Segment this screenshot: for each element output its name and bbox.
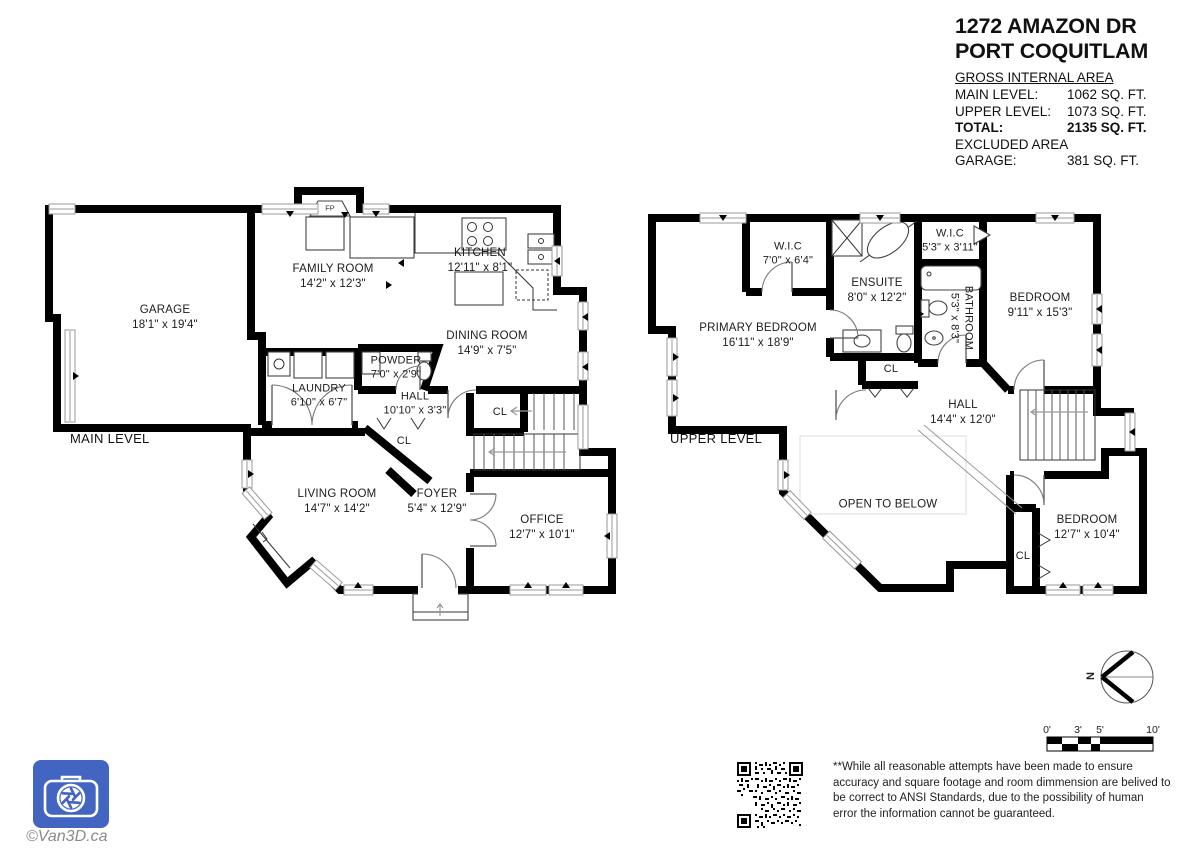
room-label-dining-room: DINING ROOM 14'9" x 7'5" bbox=[446, 329, 527, 359]
room-label-kitchen: KITCHEN 12'11" x 8'1" bbox=[448, 246, 513, 276]
room-label-primary-bedroom: PRIMARY BEDROOM 16'11" x 18'9" bbox=[699, 321, 817, 351]
scale-bar bbox=[1047, 737, 1153, 751]
title-block: 1272 AMAZON DR PORT COQUITLAM GROSS INTE… bbox=[955, 14, 1175, 170]
stat-row-total: TOTAL:2135 SQ. FT. bbox=[955, 120, 1175, 137]
room-label-garage: GARAGE 18'1" x 19'4" bbox=[132, 303, 198, 333]
room-label-hall: HALL 10'10" x 3'3" bbox=[384, 390, 447, 419]
scale-label-3: 3' bbox=[1074, 724, 1082, 736]
kitchen-island bbox=[455, 272, 503, 305]
scale-label-0: 0' bbox=[1043, 724, 1051, 736]
room-label-wic-small: W.I.C 5'3" x 3'11" bbox=[922, 227, 978, 256]
room-label-wic-primary: W.I.C 7'0" x 6'4" bbox=[763, 240, 813, 269]
address-line-1: 1272 AMAZON DR bbox=[955, 14, 1175, 39]
front-porch bbox=[413, 594, 468, 620]
room-label-foyer: FOYER 5'4" x 12'9" bbox=[407, 487, 466, 517]
qr-code bbox=[737, 762, 803, 828]
van3d-logo bbox=[33, 760, 109, 828]
room-label-family-room: FAMILY ROOM 14'2" x 12'3" bbox=[292, 262, 373, 292]
room-label-laundry: LAUNDRY 6'10" x 6'7" bbox=[291, 382, 348, 411]
disclaimer-text: **While all reasonable attempts have bee… bbox=[833, 760, 1171, 822]
stat-row-main-level: MAIN LEVEL:1062 SQ. FT. bbox=[955, 87, 1175, 104]
room-label-powder: POWDER 7'0" x 2'9" bbox=[371, 354, 422, 383]
address-line-2: PORT COQUITLAM bbox=[955, 39, 1175, 64]
scale-label-5: 5' bbox=[1096, 724, 1104, 736]
room-label-upper-hall: HALL 14'4" x 12'0" bbox=[930, 398, 996, 428]
closet-label-stairs: CL bbox=[493, 405, 507, 419]
room-label-ensuite: ENSUITE 8'0" x 12'2" bbox=[847, 276, 906, 306]
upper-level-label: UPPER LEVEL bbox=[670, 431, 762, 446]
credit-text: ©Van3D.ca bbox=[26, 828, 107, 846]
scale-label-10: 10' bbox=[1146, 724, 1160, 736]
room-label-bedroom-top: BEDROOM 9'11" x 15'3" bbox=[1008, 291, 1073, 321]
room-label-bedroom-bottom: BEDROOM 12'7" x 10'4" bbox=[1054, 513, 1120, 543]
camera-logo-icon bbox=[33, 760, 109, 828]
main-level-label: MAIN LEVEL bbox=[70, 431, 150, 446]
room-label-living-room: LIVING ROOM 14'7" x 14'2" bbox=[298, 487, 377, 517]
closet-label-hall: CL bbox=[397, 434, 411, 448]
room-label-office: OFFICE 12'7" x 10'1" bbox=[509, 513, 575, 543]
stat-row-upper-level: UPPER LEVEL:1073 SQ. FT. bbox=[955, 104, 1175, 121]
excluded-area-heading: EXCLUDED AREA bbox=[955, 137, 1175, 154]
laundry-fixtures bbox=[268, 352, 354, 378]
compass-north-icon bbox=[1101, 651, 1153, 703]
fireplace-label: FP bbox=[325, 204, 335, 213]
gross-internal-area-heading: GROSS INTERNAL AREA bbox=[955, 70, 1175, 85]
stat-row-garage: GARAGE:381 SQ. FT. bbox=[955, 153, 1175, 170]
room-label-bathroom: BATHROOM 5'3" x 8'3" bbox=[947, 286, 976, 350]
compass-n-label: N bbox=[1085, 672, 1097, 680]
closet-label-bedroom: CL bbox=[1016, 549, 1030, 563]
closet-label-ensuite: CL bbox=[884, 362, 898, 376]
floor-plan-page: { "header": { "title_line1": "1272 AMAZO… bbox=[0, 0, 1200, 848]
open-to-below-label: OPEN TO BELOW bbox=[839, 498, 938, 513]
